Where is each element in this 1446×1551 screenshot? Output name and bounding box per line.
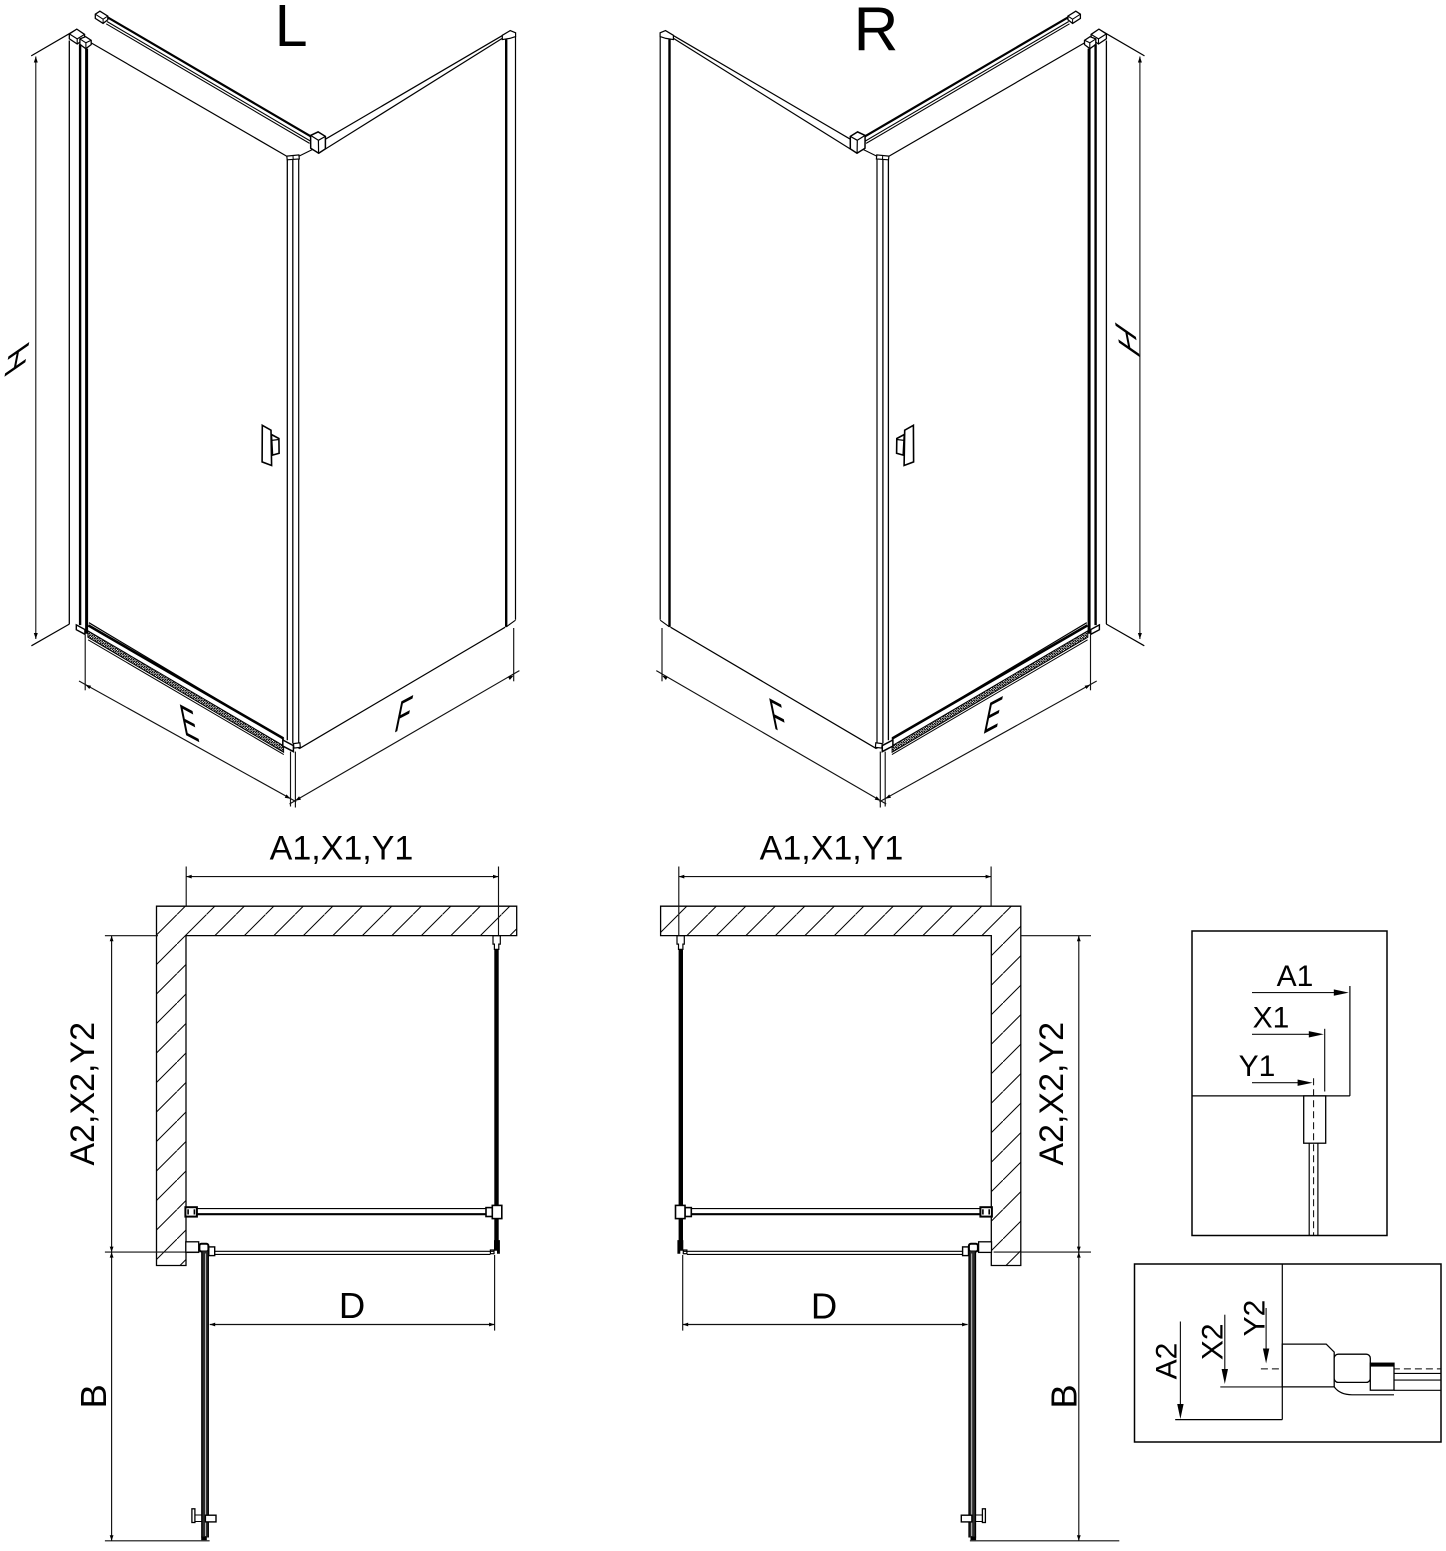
- svg-text:B: B: [73, 1384, 114, 1408]
- svg-text:A1,X1,Y1: A1,X1,Y1: [760, 829, 904, 867]
- svg-text:A2: A2: [1150, 1343, 1183, 1380]
- svg-text:X2: X2: [1197, 1323, 1230, 1360]
- svg-text:Y2: Y2: [1238, 1300, 1271, 1337]
- svg-text:A2,X2,Y2: A2,X2,Y2: [64, 1022, 102, 1166]
- svg-text:A1: A1: [1277, 960, 1314, 993]
- svg-text:Y1: Y1: [1239, 1050, 1276, 1083]
- svg-text:L: L: [275, 0, 308, 59]
- svg-text:X1: X1: [1253, 1002, 1290, 1035]
- svg-text:D: D: [811, 1286, 837, 1327]
- svg-text:A2,X2,Y2: A2,X2,Y2: [1033, 1022, 1071, 1166]
- svg-text:R: R: [854, 0, 899, 64]
- svg-text:B: B: [1044, 1384, 1085, 1408]
- svg-text:A1,X1,Y1: A1,X1,Y1: [270, 829, 414, 867]
- svg-text:D: D: [339, 1285, 365, 1326]
